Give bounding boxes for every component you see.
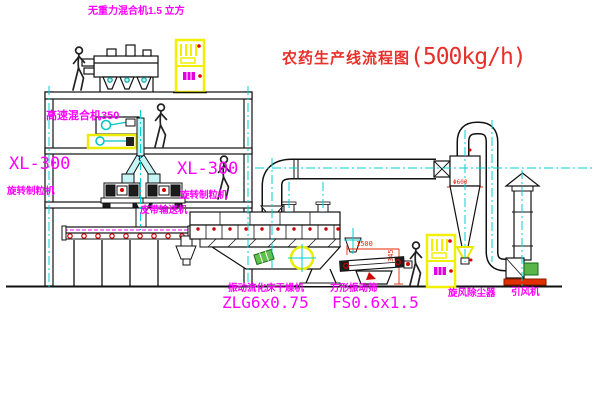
label-granulator-left-name: 旋转制粒机: [7, 187, 55, 197]
dimension-screen-length: 1500: [356, 241, 373, 248]
label-granulator-right-model: XL-300: [177, 161, 238, 178]
person-figure-roof: [73, 47, 85, 90]
belt-conveyor: [62, 226, 192, 286]
label-belt-conveyor: 皮带输送机: [140, 206, 188, 216]
title-text: 农药生产线流程图: [282, 47, 410, 68]
label-screen-model: FS0.6x1.5: [332, 295, 419, 311]
title-capacity: (500kg/h): [410, 44, 526, 70]
control-cabinet-1: [173, 40, 207, 93]
induced-draft-fan: [504, 258, 546, 285]
control-cabinet-2: [427, 235, 455, 287]
process-flow-diagram: 无重力混合机1.5 立方 农药生产线流程图 (500kg/h) 高速混合机350…: [0, 0, 600, 403]
dryer-feed-hopper: [176, 236, 196, 265]
label-fan: 引风机: [511, 288, 540, 298]
fluid-bed-dryer: [190, 202, 340, 287]
dimension-screen-height: 345: [388, 249, 395, 262]
diagram-title: 农药生产线流程图 (500kg/h): [282, 44, 526, 70]
label-high-speed-mixer: 高速混合机350: [46, 111, 119, 122]
dimension-cyclone-diameter: Φ600: [453, 180, 467, 186]
label-granulator-left-model: XL-300: [9, 156, 70, 173]
person-figure-floor2: [155, 104, 167, 147]
rotary-granulator-left: [101, 174, 143, 207]
gravity-free-mixer: [82, 45, 158, 92]
label-dryer-model: ZLG6x0.75: [222, 295, 309, 311]
label-gravity-mixer: 无重力混合机1.5 立方: [88, 7, 185, 17]
vibrating-screen: [340, 228, 412, 284]
label-cyclone: 旋风除尘器: [448, 289, 496, 299]
label-granulator-right-name: 旋转制粒机: [180, 191, 228, 201]
